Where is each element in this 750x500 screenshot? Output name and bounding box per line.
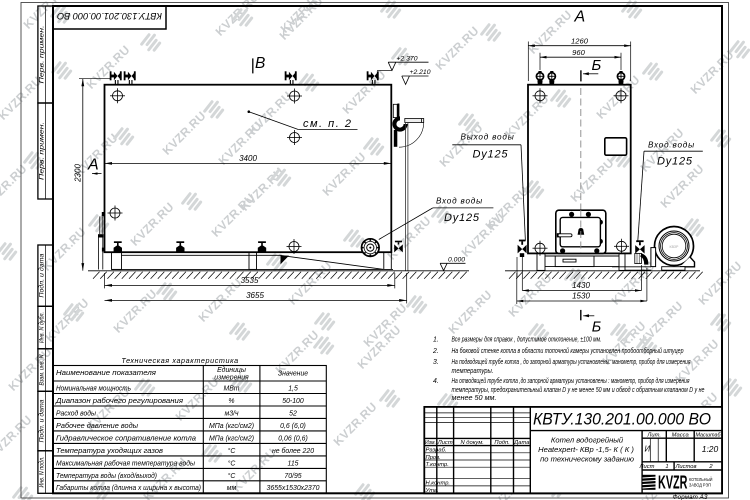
svg-text:Номинальная мощность: Номинальная мощность bbox=[56, 385, 131, 392]
svg-text:°С: °С bbox=[228, 459, 237, 467]
svg-text:+2.210: +2.210 bbox=[410, 69, 431, 76]
svg-text:%: % bbox=[228, 398, 234, 405]
svg-text:МПа (кгс/см2): МПа (кгс/см2) bbox=[209, 423, 254, 430]
svg-text:1: 1 bbox=[665, 464, 668, 470]
svg-text:115: 115 bbox=[288, 460, 299, 467]
svg-text:мм: мм bbox=[227, 485, 237, 492]
svg-text:температуры.: температуры. bbox=[452, 368, 494, 375]
svg-text:+2.370: +2.370 bbox=[397, 55, 418, 62]
svg-text:Перв. примен.: Перв. примен. bbox=[39, 26, 45, 84]
svg-text:1260: 1260 bbox=[571, 36, 589, 45]
svg-text:На подводящей трубе котла , д: На подводящей трубе котла , до запорной … bbox=[452, 358, 691, 366]
svg-text:Масштаб: Масштаб bbox=[696, 433, 722, 439]
svg-text:Утв.: Утв. bbox=[425, 488, 439, 494]
svg-text:°С: °С bbox=[228, 472, 237, 480]
svg-text:ЗАВОД РЭП: ЗАВОД РЭП bbox=[689, 483, 711, 489]
svg-text:2300: 2300 bbox=[74, 164, 83, 183]
svg-text:МПа (кгс/см2): МПа (кгс/см2) bbox=[209, 435, 254, 442]
svg-text:Расход воды: Расход воды bbox=[56, 409, 96, 417]
svg-text:2.: 2. bbox=[432, 348, 439, 355]
svg-text:измерения: измерения bbox=[214, 375, 249, 382]
svg-text:Масса: Масса bbox=[672, 433, 690, 439]
svg-text:КВТУ.130.201.00.000 ВО: КВТУ.130.201.00.000 ВО bbox=[533, 411, 711, 429]
svg-text:Подп. и дата: Подп. и дата bbox=[39, 253, 45, 298]
svg-text:Изм.: Изм. bbox=[425, 440, 436, 446]
svg-text:KVZR: KVZR bbox=[658, 473, 688, 493]
svg-text:Наименование показателя: Наименование показателя bbox=[56, 370, 156, 377]
svg-text:0,06 (0,6): 0,06 (0,6) bbox=[278, 435, 308, 442]
svg-text:Перв. примен.: Перв. примен. bbox=[39, 122, 45, 180]
svg-text:На боковой стенке котла в обла: На боковой стенке котла в области топочн… bbox=[452, 347, 684, 355]
svg-text:0,6 (6,0): 0,6 (6,0) bbox=[280, 423, 306, 430]
svg-text:1:20: 1:20 bbox=[702, 444, 719, 454]
svg-text:Heatexpert- КВр -1,5- К ( К ): Heatexpert- КВр -1,5- К ( К ) bbox=[538, 445, 634, 454]
svg-text:70/95: 70/95 bbox=[284, 473, 301, 480]
svg-text:не более 220: не более 220 bbox=[272, 447, 314, 455]
svg-text:Разраб.: Разраб. bbox=[426, 448, 447, 454]
svg-text:Формат А3: Формат А3 bbox=[673, 494, 708, 500]
svg-text:3400: 3400 bbox=[239, 154, 257, 163]
svg-text:Dy125: Dy125 bbox=[473, 149, 509, 161]
svg-text:1.: 1. bbox=[433, 337, 439, 344]
svg-text:КВТУ.130.201.00.000 ВО: КВТУ.130.201.00.000 ВО bbox=[57, 11, 162, 21]
svg-text:Пров.: Пров. bbox=[426, 455, 441, 461]
svg-text:Dy125: Dy125 bbox=[444, 212, 480, 224]
svg-text:Диапазон рабочего регулировани: Диапазон рабочего регулирования bbox=[55, 397, 183, 405]
svg-text:менее 50 мм.: менее 50 мм. bbox=[452, 395, 497, 402]
svg-text:Б: Б bbox=[592, 319, 601, 335]
svg-text:Вход воды: Вход воды bbox=[436, 197, 483, 206]
svg-text:Лист: Лист bbox=[437, 440, 453, 446]
svg-text:Подп. и дата: Подп. и дата bbox=[39, 399, 45, 443]
svg-text:Все размеры для справок , допу: Все размеры для справок , допустимое отк… bbox=[452, 336, 602, 344]
svg-text:Лит.: Лит. bbox=[646, 433, 661, 439]
svg-text:Выход воды: Выход воды bbox=[461, 133, 515, 142]
svg-text:Техническая характеристика: Техническая характеристика bbox=[121, 356, 238, 365]
svg-text:Максимальная рабочая температу: Максимальная рабочая температура воды bbox=[56, 459, 195, 467]
svg-text:Т.контр.: Т.контр. bbox=[426, 462, 449, 468]
svg-text:Котел водогрейный: Котел водогрейный bbox=[551, 436, 624, 445]
svg-text:МВт: МВт bbox=[223, 385, 239, 392]
svg-text:Взам. инв. N: Взам. инв. N bbox=[39, 354, 45, 386]
svg-text:КВЗР: КВЗР bbox=[670, 245, 680, 249]
svg-text:И: И bbox=[645, 445, 651, 454]
svg-text:1430: 1430 bbox=[572, 281, 590, 290]
svg-text:Гидравлическое сопративление к: Гидравлическое сопративление котла bbox=[56, 434, 196, 442]
svg-text:4.: 4. bbox=[433, 378, 439, 385]
svg-text:Габариты котла (длинна х ширин: Габариты котла (длинна х ширина х высота… bbox=[56, 484, 201, 492]
svg-text:N докум.: N докум. bbox=[460, 440, 483, 446]
svg-text:Дата: Дата bbox=[513, 440, 530, 446]
svg-text:Значение: Значение bbox=[278, 371, 308, 378]
svg-text:температуры, предохранительный: температуры, предохранительный клапан D … bbox=[452, 386, 705, 394]
svg-text:50-100: 50-100 bbox=[282, 398, 304, 405]
svg-text:по техническому заданию: по техническому заданию bbox=[540, 455, 634, 464]
svg-text:На отводящей трубе котла ,до з: На отводящей трубе котла ,до запорной ар… bbox=[452, 377, 690, 385]
svg-text:Единицы: Единицы bbox=[217, 366, 246, 374]
svg-text:Вход воды: Вход воды bbox=[648, 141, 695, 150]
svg-text:Листов: Листов bbox=[674, 464, 696, 470]
svg-text:1530: 1530 bbox=[572, 292, 590, 301]
svg-text:Лист: Лист bbox=[639, 464, 655, 470]
svg-text:см. п. 2: см. п. 2 bbox=[303, 118, 352, 130]
svg-text:Температура уходящих газов: Температура уходящих газов bbox=[56, 447, 163, 455]
svg-text:°С: °С bbox=[228, 447, 237, 455]
svg-text:52: 52 bbox=[289, 410, 297, 417]
svg-text:А: А bbox=[574, 9, 586, 26]
svg-text:3535: 3535 bbox=[241, 276, 259, 285]
svg-text:А: А bbox=[87, 157, 99, 174]
svg-text:Инв. N дубл.: Инв. N дубл. bbox=[39, 312, 45, 343]
svg-text:Н.контр.: Н.контр. bbox=[426, 481, 451, 487]
svg-text:Рабочее давление воды: Рабочее давление воды bbox=[56, 422, 138, 430]
svg-text:1,5: 1,5 bbox=[288, 385, 298, 392]
svg-text:3655х1530х2370: 3655х1530х2370 bbox=[267, 485, 320, 492]
svg-text:Б: Б bbox=[592, 57, 602, 74]
svg-text:Инв. N подл.: Инв. N подл. bbox=[39, 457, 45, 488]
svg-text:м3/ч: м3/ч bbox=[224, 410, 238, 417]
svg-text:3655: 3655 bbox=[246, 291, 264, 300]
svg-text:Температура воды (вход/выход): Температура воды (вход/выход) bbox=[56, 472, 157, 480]
svg-text:Подп.: Подп. bbox=[494, 440, 509, 446]
svg-text:Dy125: Dy125 bbox=[657, 156, 693, 168]
svg-text:В: В bbox=[255, 55, 265, 72]
svg-text:0.000: 0.000 bbox=[448, 256, 465, 263]
svg-text:960: 960 bbox=[572, 48, 585, 57]
svg-text:3.: 3. bbox=[433, 359, 439, 366]
